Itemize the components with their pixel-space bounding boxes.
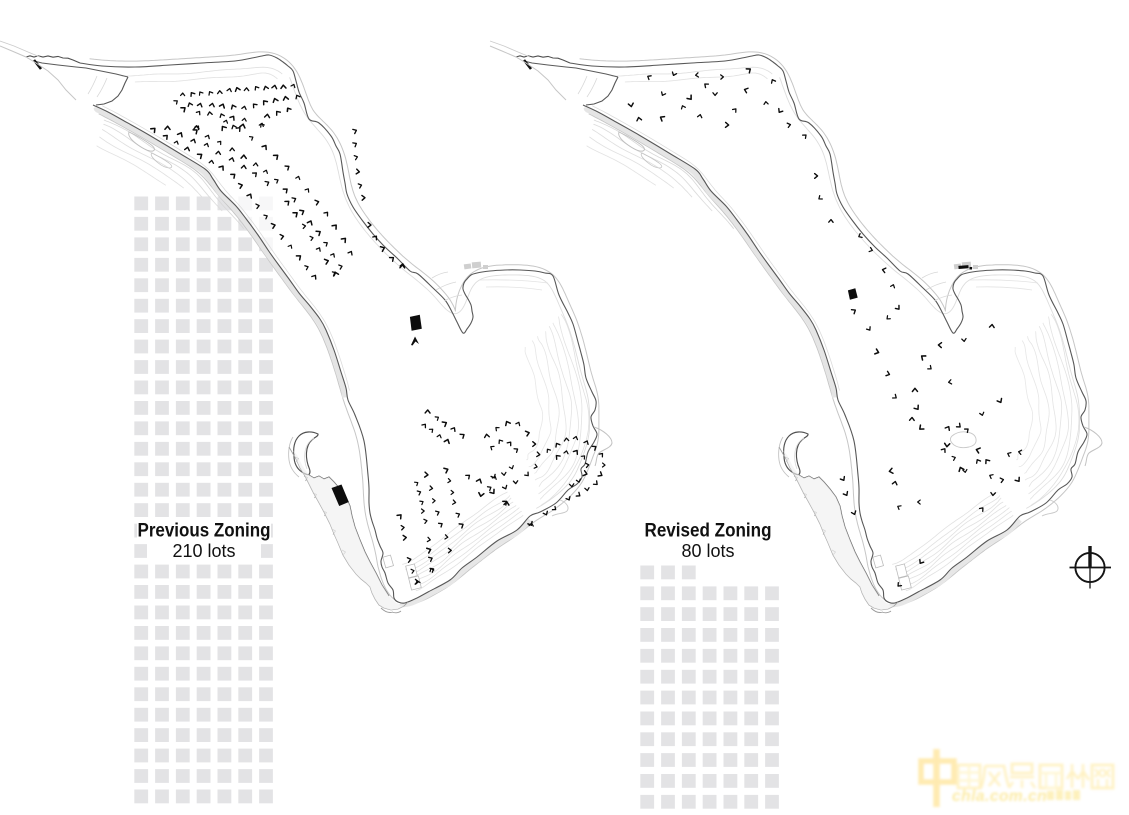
svg-text:210 lots: 210 lots bbox=[172, 541, 235, 561]
svg-text:Revised Zoning: Revised Zoning bbox=[645, 521, 772, 542]
svg-text:Previous Zoning: Previous Zoning bbox=[138, 521, 271, 542]
svg-text:80 lots: 80 lots bbox=[681, 541, 734, 561]
svg-text:chla.com.cn: chla.com.cn bbox=[952, 788, 1047, 805]
